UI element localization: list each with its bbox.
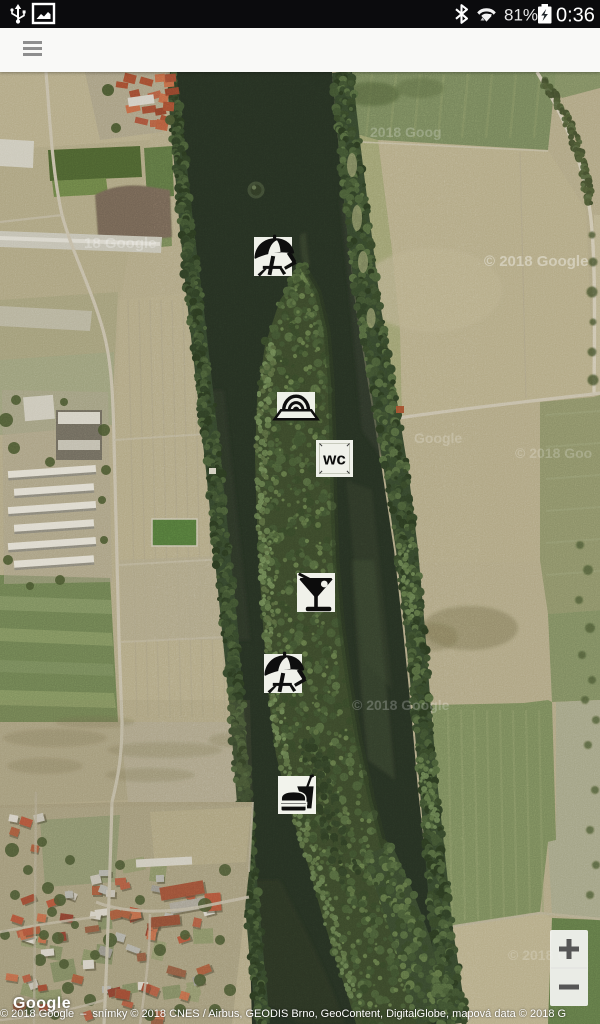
svg-text:Google: Google [414, 430, 462, 446]
svg-text:© 2018 Google: © 2018 Google [352, 697, 450, 713]
svg-text:18 Google: 18 Google [84, 235, 157, 252]
svg-text:© 2018 Goo: © 2018 Goo [515, 445, 592, 461]
svg-text:wc: wc [322, 450, 346, 469]
svg-text:2018 Goog: 2018 Goog [370, 124, 442, 140]
svg-text:81%: 81% [504, 6, 538, 25]
svg-text:© 2018 Google: © 2018 Google [484, 253, 588, 270]
svg-text:0:36: 0:36 [556, 5, 595, 27]
